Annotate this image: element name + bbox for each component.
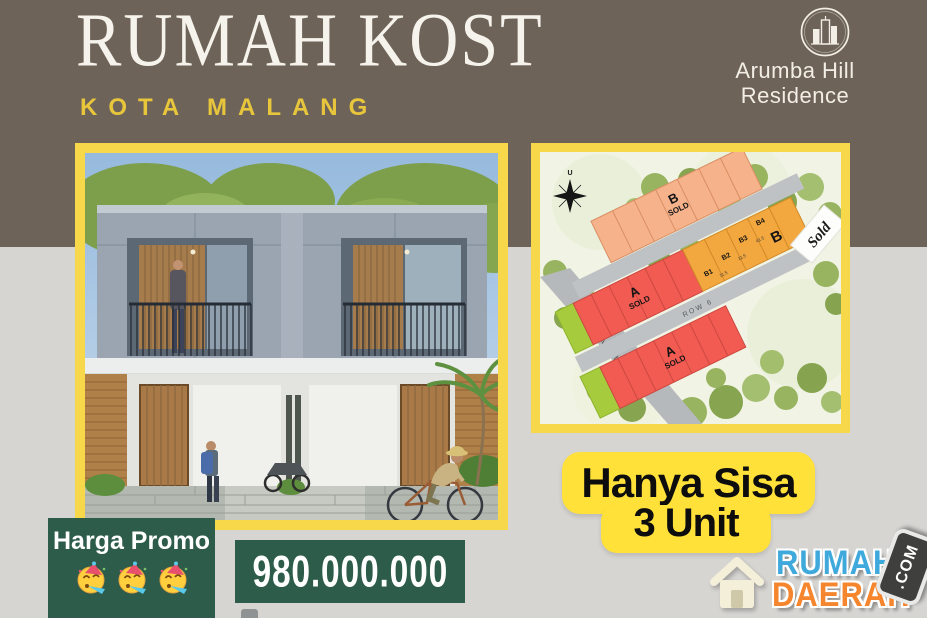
remaining-units-line2: 3 Unit	[633, 501, 738, 546]
cut-off-icon	[241, 609, 258, 618]
house-photo-frame	[75, 143, 508, 530]
promo-label-box: Harga Promo	[48, 518, 215, 618]
page-subtitle: KOTA MALANG	[80, 94, 378, 122]
price-box: 980.000.000	[235, 540, 465, 603]
price-value: 980.000.000	[252, 546, 448, 596]
party-face-emoji-icon	[74, 561, 108, 595]
party-face-emoji-icon	[156, 561, 190, 595]
promo-label: Harga Promo	[53, 527, 210, 556]
party-face-emoji-icon	[115, 561, 149, 595]
com-badge-label: .COM	[891, 542, 924, 591]
brand-name-line1: Arumba Hill	[710, 58, 880, 83]
house-icon	[704, 546, 770, 614]
page-title: RUMAH KOST	[76, 0, 496, 84]
brand-name: Arumba Hill Residence	[710, 58, 880, 108]
house-photo	[85, 153, 498, 520]
site-plan-frame: Jl. Arumba ROW 6 B SOLD A SOLD B1 B2 B3 …	[531, 143, 850, 433]
brand-name-line2: Residence	[710, 83, 880, 108]
party-emoji-row	[74, 561, 190, 595]
site-plan-map: Jl. Arumba ROW 6 B SOLD A SOLD B1 B2 B3 …	[540, 152, 841, 424]
remaining-units-line1: Hanya Sisa	[581, 459, 795, 507]
arumba-hill-logo-icon	[797, 4, 853, 60]
compass-north-label: U	[567, 170, 572, 177]
